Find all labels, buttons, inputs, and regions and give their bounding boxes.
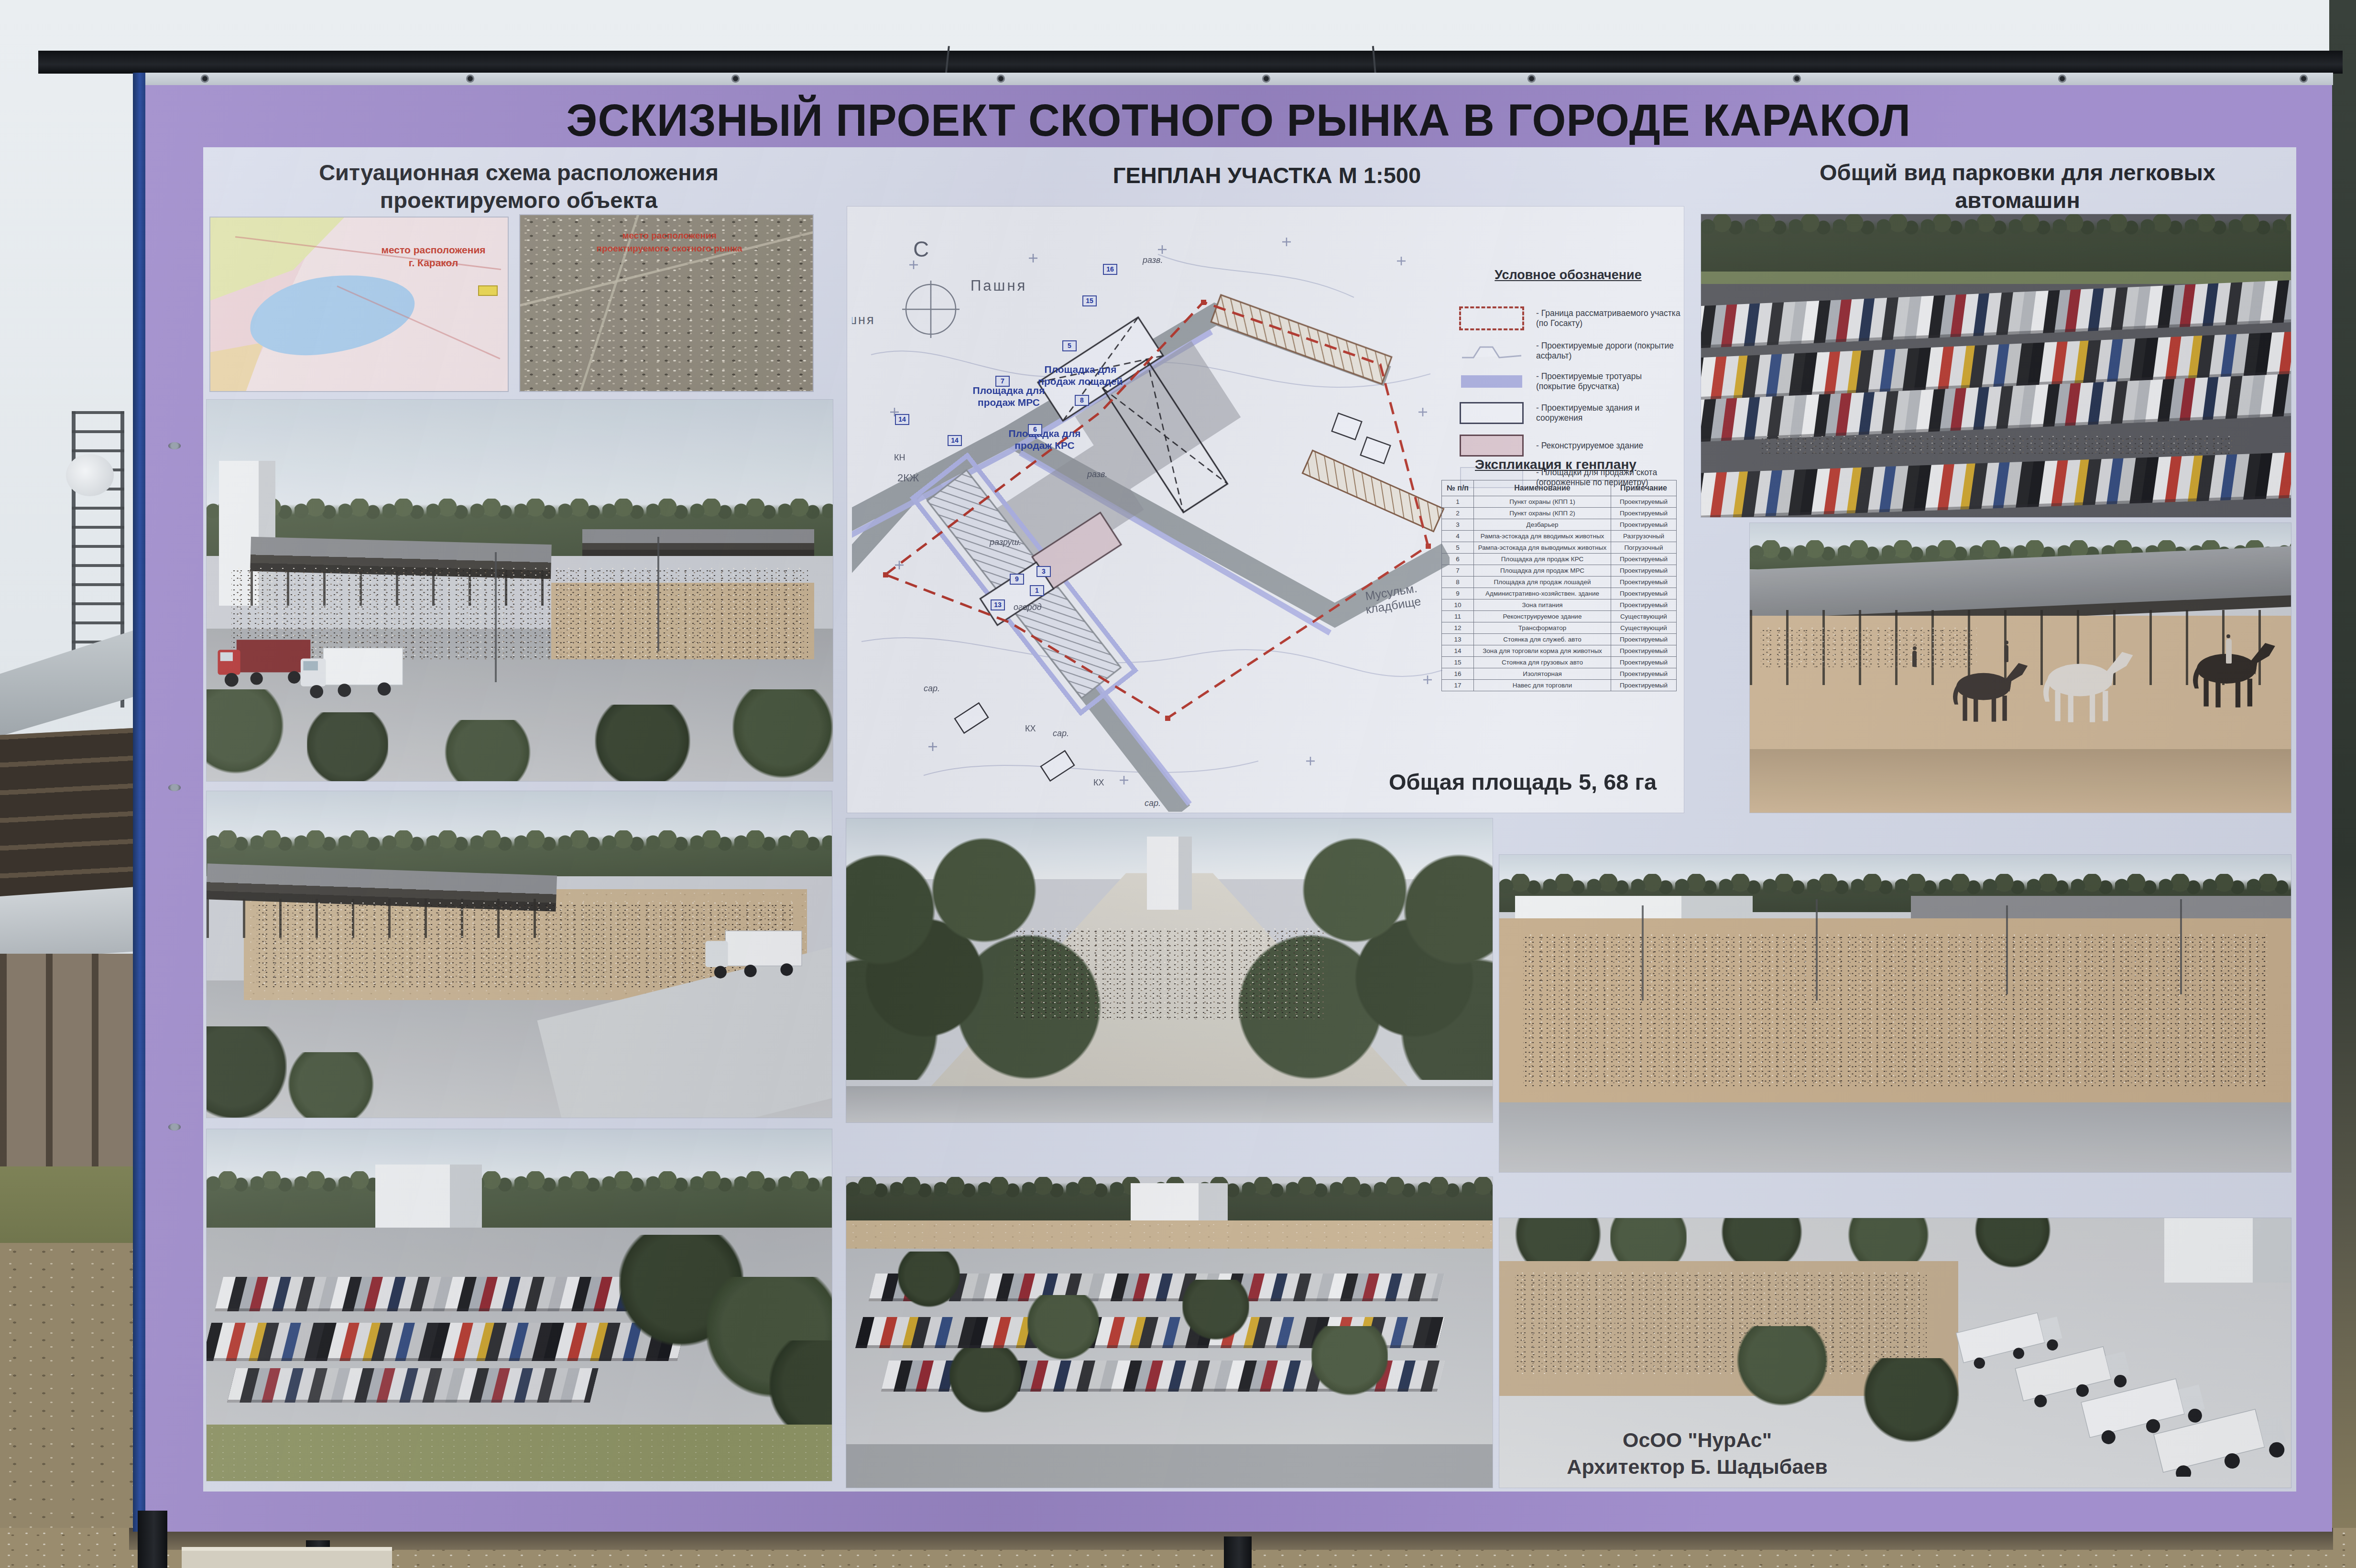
render-horse-market: [1750, 523, 2291, 813]
table-body: 1Пункт охраны (КПП 1)Проектируемый2Пункт…: [1442, 496, 1677, 691]
table-cell: Пункт охраны (КПП 2): [1474, 508, 1611, 519]
situational-header: Ситуационная схема расположения проектир…: [249, 159, 789, 214]
grommet: [1793, 75, 1801, 83]
background-dirt: [0, 1243, 136, 1568]
table-row: 11Реконструируемое зданиеСуществующий: [1442, 611, 1677, 622]
plan-badge: 14: [895, 414, 909, 425]
dense-crowd: [1523, 934, 2268, 1087]
background-lower-roof: [0, 887, 136, 961]
light-pole: [657, 537, 659, 651]
plan-badge: 5: [1062, 340, 1077, 351]
plan-label-horses-platform: Площадка для продаж лощадей: [1037, 363, 1123, 387]
situational-header-line2: проектируемого объекта: [249, 186, 789, 214]
boundary-symbol: [1456, 306, 1527, 330]
perimeter-road: [1499, 1102, 2291, 1172]
plan-label-kn: КН: [894, 453, 905, 463]
plan-badge: 7: [995, 376, 1010, 387]
person-light: [2226, 639, 2232, 664]
plan-badge: 9: [1010, 574, 1024, 585]
genplan-legend: Условное обозначение - Граница рассматри…: [1456, 268, 1680, 488]
plan-label-sar: сар.: [1053, 729, 1069, 739]
table-cell: Разгрузочный: [1611, 531, 1677, 542]
tree: [207, 1026, 287, 1118]
grommet: [997, 75, 1005, 83]
genplan-drawing: С Пашня Пашня Площадка для продаж лощаде…: [852, 211, 1450, 812]
table-row: 8Площадка для продаж лошадейПроектируемы…: [1442, 577, 1677, 588]
person: [2004, 645, 2008, 662]
plan-badge: 16: [1103, 264, 1117, 275]
plan-label-mrs-platform: Площадка для продаж МРС: [971, 384, 1047, 408]
table-row: 13Стоянка для служеб. автоПроектируемый: [1442, 634, 1677, 645]
plan-label-ogorod: огород: [1014, 602, 1042, 612]
legend-label: - Проектируемые тротуары (покрытие брусч…: [1536, 371, 1680, 392]
situational-header-line1: Ситуационная схема расположения: [249, 159, 789, 186]
tree: [307, 712, 388, 781]
plan-label-razv: разв.: [1143, 255, 1163, 265]
legend-label: - Граница рассматриваемого участка (по Г…: [1536, 308, 1680, 328]
plan-badge: 6: [1028, 424, 1042, 435]
table-cell: 13: [1442, 634, 1474, 645]
light-pole: [2180, 899, 2182, 994]
table-row: 1Пункт охраны (КПП 1)Проектируемый: [1442, 496, 1677, 508]
table-cell: Проектируемый: [1611, 577, 1677, 588]
table-cell: Пункт охраны (КПП 1): [1474, 496, 1611, 508]
table-cell: 15: [1442, 657, 1474, 668]
treeline: [1701, 214, 2291, 275]
tree: [1974, 1218, 2051, 1269]
table-cell: 7: [1442, 565, 1474, 577]
table-cell: 14: [1442, 645, 1474, 657]
table-cell: Изоляторная: [1474, 668, 1611, 680]
building-symbol: [1456, 402, 1527, 424]
compass-north-label: С: [913, 236, 929, 262]
table-cell: Погрузочный: [1611, 542, 1677, 554]
tree: [595, 705, 690, 781]
render-market-canopy-view: [207, 791, 832, 1118]
render-market-trucks-view: [207, 400, 833, 781]
horse-dark: [2172, 621, 2291, 720]
far-sheds: [582, 529, 814, 556]
billboard-top-frame: [38, 51, 2343, 74]
grommet: [1527, 75, 1536, 83]
background-fence: [0, 954, 136, 1171]
frame-leg: [1224, 1536, 1252, 1568]
table-cell: Проектируемый: [1611, 668, 1677, 680]
concrete-block: [182, 1547, 392, 1568]
credits-architect: Архитектор Б. Шадыбаев: [1506, 1453, 1888, 1480]
grommet: [2058, 75, 2066, 83]
render-parking-left: [207, 1129, 832, 1481]
genplan-svg: [852, 211, 1450, 812]
table-cell: 11: [1442, 611, 1474, 622]
road-symbol: [1456, 341, 1527, 360]
table-cell: Существующий: [1611, 611, 1677, 622]
table-cell: Зона питания: [1474, 599, 1611, 611]
table-header-row: № п/п Наименование Примечание: [1442, 480, 1677, 496]
reconstruct-symbol: [1456, 435, 1527, 457]
rivet: [168, 1123, 181, 1131]
table-cell: 8: [1442, 577, 1474, 588]
parking-header-line1: Общий вид парковки для легковых: [1788, 159, 2247, 186]
tree: [1311, 1326, 1388, 1398]
photo-of-project-billboard: ЭСКИЗНЫЙ ПРОЕКТ СКОТНОГО РЫНКА В ГОРОДЕ …: [0, 0, 2356, 1568]
plan-label-pashnya-left: Пашня: [852, 313, 875, 327]
table-cell: Административно-хозяйствен. здание: [1474, 588, 1611, 599]
table-cell: Рампа-эстокада для вводимых животных: [1474, 531, 1611, 542]
grass-strip: [1701, 272, 2291, 283]
table-cell: Рампа-эстокада для выводимых животных: [1474, 542, 1611, 554]
table-cell: Зона для торговли корма для животных: [1474, 645, 1611, 657]
render-parking-center: [846, 1177, 1493, 1488]
table-cell: Стоянка для грузовых авто: [1474, 657, 1611, 668]
tree: [1182, 1280, 1249, 1342]
genplan-header-text: ГЕНПЛАН УЧАСТКА М 1:500: [1071, 162, 1463, 189]
background-trees-right: [2329, 0, 2356, 1568]
banner-top-wrap: [133, 73, 2333, 85]
grommet: [1262, 75, 1270, 83]
plan-label-razv: разв.: [1087, 469, 1107, 479]
total-area-note: Общая площадь 5, 68 га: [1389, 769, 1657, 795]
explication-title: Экспликация к генплану: [1475, 457, 1680, 472]
white-truck: [294, 625, 407, 724]
table-cell: Проектируемый: [1611, 554, 1677, 565]
legend-item: - Граница рассматриваемого участка (по Г…: [1456, 306, 1680, 330]
light-pole: [2006, 905, 2008, 994]
render-alley-view: [846, 818, 1493, 1122]
table-cell: Площадка для продаж МРС: [1474, 565, 1611, 577]
table-cell: Проектируемый: [1611, 588, 1677, 599]
tree: [288, 1052, 374, 1118]
plan-label-sar: сар.: [924, 684, 940, 694]
explication-table: № п/п Наименование Примечание 1Пункт охр…: [1441, 480, 1677, 691]
rivet: [168, 784, 181, 791]
legend-label: - Проектируемые здания и сооружения: [1536, 403, 1680, 423]
parking-header-line2: автомашин: [1788, 186, 2247, 214]
table-cell: Проектируемый: [1611, 634, 1677, 645]
horse-white: [2020, 633, 2150, 731]
table-row: 7Площадка для продаж МРСПроектируемый: [1442, 565, 1677, 577]
sand-strip: [846, 1220, 1493, 1249]
table-cell: Навес для торговли: [1474, 680, 1611, 691]
table-cell: Проектируемый: [1611, 599, 1677, 611]
map-annotation-line2: г. Каракол: [365, 256, 502, 269]
location-map: место расположения г. Каракол: [210, 218, 508, 391]
table-cell: Площадка для продаж лошадей: [1474, 577, 1611, 588]
table-cell: Проектируемый: [1611, 565, 1677, 577]
tree: [898, 1252, 960, 1309]
legend-item: - Проектируемые тротуары (покрытие брусч…: [1456, 371, 1680, 392]
table-cell: Площадка для продаж КРС: [1474, 554, 1611, 565]
legend-title: Условное обозначение: [1456, 268, 1680, 283]
table-cell: Стоянка для служеб. авто: [1474, 634, 1611, 645]
table-row: 5Рампа-эстокада для выводимых животныхПо…: [1442, 542, 1677, 554]
satellite-dish: [66, 454, 114, 496]
col-note: Примечание: [1611, 480, 1677, 496]
table-cell: 2: [1442, 508, 1474, 519]
plan-label-2kzh: 2КЖ: [897, 472, 919, 484]
table-cell: Трансформатор: [1474, 622, 1611, 634]
background-shed-structure: [0, 728, 136, 900]
table-cell: Проектируемый: [1611, 657, 1677, 668]
table-cell: 4: [1442, 531, 1474, 542]
person: [1912, 651, 1917, 667]
grommet: [466, 75, 474, 83]
map-annotation-line1: место расположения: [365, 243, 502, 256]
legend-item: - Проектируемые дороги (покрытие асфальт…: [1456, 341, 1680, 361]
car-row: [227, 1368, 599, 1403]
plan-badge: 15: [1082, 295, 1097, 306]
satellite-annotation-line2: проектируемого скотного рынка: [578, 242, 760, 255]
table-cell: 6: [1442, 554, 1474, 565]
col-name: Наименование: [1474, 480, 1611, 496]
map-annotation: место расположения г. Каракол: [365, 243, 502, 269]
tree: [1737, 1326, 1828, 1407]
white-truck: [700, 915, 807, 994]
table-cell: Дезбарьер: [1474, 519, 1611, 531]
background-grass: [0, 1166, 136, 1252]
table-row: 6Площадка для продаж КРСПроектируемый: [1442, 554, 1677, 565]
ground-shadow: [1750, 749, 2291, 813]
legend-item: - Проектируемые здания и сооружения: [1456, 402, 1680, 424]
satellite-annotation: место расположения проектируемого скотно…: [578, 229, 760, 255]
plan-label-pashnya: Пашня: [971, 277, 1027, 294]
map-site-marker: [478, 285, 498, 296]
light-pole: [1816, 899, 1818, 1001]
table-row: 16ИзоляторнаяПроектируемый: [1442, 668, 1677, 680]
tree: [1027, 1295, 1099, 1362]
billboard-title-band: ЭСКИЗНЫЙ ПРОЕКТ СКОТНОГО РЫНКА В ГОРОДЕ …: [145, 94, 2332, 146]
render-parking-aerial: [1701, 214, 2291, 517]
foreground-path: [846, 1086, 1493, 1122]
genplan-header: ГЕНПЛАН УЧАСТКА М 1:500: [1071, 162, 1463, 189]
table-row: 2Пункт охраны (КПП 2)Проектируемый: [1442, 508, 1677, 519]
white-tower: [1147, 837, 1192, 910]
table-row: 3ДезбарьерПроектируемый: [1442, 519, 1677, 531]
plan-badge: 13: [991, 599, 1005, 610]
tree: [207, 689, 284, 775]
plan-badge: 1: [1030, 585, 1044, 596]
page-title: ЭСКИЗНЫЙ ПРОЕКТ СКОТНОГО РЫНКА В ГОРОДЕ …: [567, 94, 1911, 146]
table-row: 10Зона питанияПроектируемый: [1442, 599, 1677, 611]
plan-label-kh: КХ: [1093, 778, 1104, 788]
table-cell: Проектируемый: [1611, 680, 1677, 691]
satellite-image: место расположения проектируемого скотно…: [520, 215, 813, 391]
pedestrians: [1760, 436, 2232, 454]
rivet: [168, 442, 181, 449]
table-row: 4Рампа-эстокада для вводимых животныхРаз…: [1442, 531, 1677, 542]
table-cell: 16: [1442, 668, 1474, 680]
plan-label-krs-platform: Площадка для продаж КРС: [1004, 427, 1085, 451]
table-row: 14Зона для торговли корма для животныхПр…: [1442, 645, 1677, 657]
plan-badge: 14: [948, 435, 962, 446]
parking-header: Общий вид парковки для легковых автомаши…: [1788, 159, 2247, 214]
grommet: [2300, 75, 2308, 83]
legend-label: - Проектируемые дороги (покрытие асфальт…: [1536, 341, 1680, 361]
legend-label: - Реконструируемое здание: [1536, 441, 1643, 451]
plan-label-razrush: разруш.: [990, 537, 1021, 547]
render-market-overview: [1499, 855, 2291, 1172]
tree: [949, 1348, 1021, 1415]
plan-badge: 8: [1075, 395, 1089, 406]
satellite-annotation-line1: место расположения: [578, 229, 760, 242]
table-cell: 10: [1442, 599, 1474, 611]
table-row: 12ТрансформаторСуществующий: [1442, 622, 1677, 634]
table-cell: 9: [1442, 588, 1474, 599]
grommet: [731, 75, 740, 83]
frame-leg: [138, 1511, 167, 1568]
table-cell: 17: [1442, 680, 1474, 691]
treeline: [207, 1171, 832, 1228]
table-row: 17Навес для торговлиПроектируемый: [1442, 680, 1677, 691]
table-cell: 5: [1442, 542, 1474, 554]
car-row: [207, 1323, 687, 1361]
table-cell: Существующий: [1611, 622, 1677, 634]
tree: [445, 720, 531, 781]
table-row: 9Административно-хозяйствен. зданиеПроек…: [1442, 588, 1677, 599]
table-row: 15Стоянка для грузовых автоПроектируемый: [1442, 657, 1677, 668]
tree: [732, 689, 833, 780]
background-shed-roof: [0, 629, 139, 736]
billboard-blue-edge: [133, 73, 145, 1532]
sidewalk-symbol: [1456, 375, 1527, 388]
car-row: [215, 1277, 661, 1311]
explication-block: Экспликация к генплану № п/п Наименовани…: [1441, 457, 1680, 691]
table-cell: Проектируемый: [1611, 645, 1677, 657]
car-row: [1701, 452, 2291, 517]
credits-block: ОсОО "НурАс" Архитектор Б. Шадыбаев: [1506, 1426, 1888, 1480]
table-cell: 1: [1442, 496, 1474, 508]
table-cell: Реконструируемое здание: [1474, 611, 1611, 622]
credits-company: ОсОО "НурАс": [1506, 1426, 1888, 1453]
crowd: [1014, 928, 1325, 1019]
plan-badge: 3: [1036, 566, 1051, 577]
light-pole: [495, 552, 497, 682]
plan-label-sar: сар.: [1145, 798, 1161, 808]
lawn: [207, 1425, 832, 1481]
light-pole: [1642, 905, 1644, 1001]
plan-label-kh: КХ: [1025, 724, 1036, 734]
table-cell: 3: [1442, 519, 1474, 531]
table-cell: Проектируемый: [1611, 496, 1677, 508]
grommet: [201, 75, 209, 83]
table-cell: Проектируемый: [1611, 519, 1677, 531]
table-cell: 12: [1442, 622, 1474, 634]
perimeter-road: [846, 1444, 1493, 1488]
legend-item: - Реконструируемое здание: [1456, 435, 1680, 457]
col-number: № п/п: [1442, 480, 1474, 496]
truck-row: [1942, 1267, 2291, 1477]
table-cell: Проектируемый: [1611, 508, 1677, 519]
